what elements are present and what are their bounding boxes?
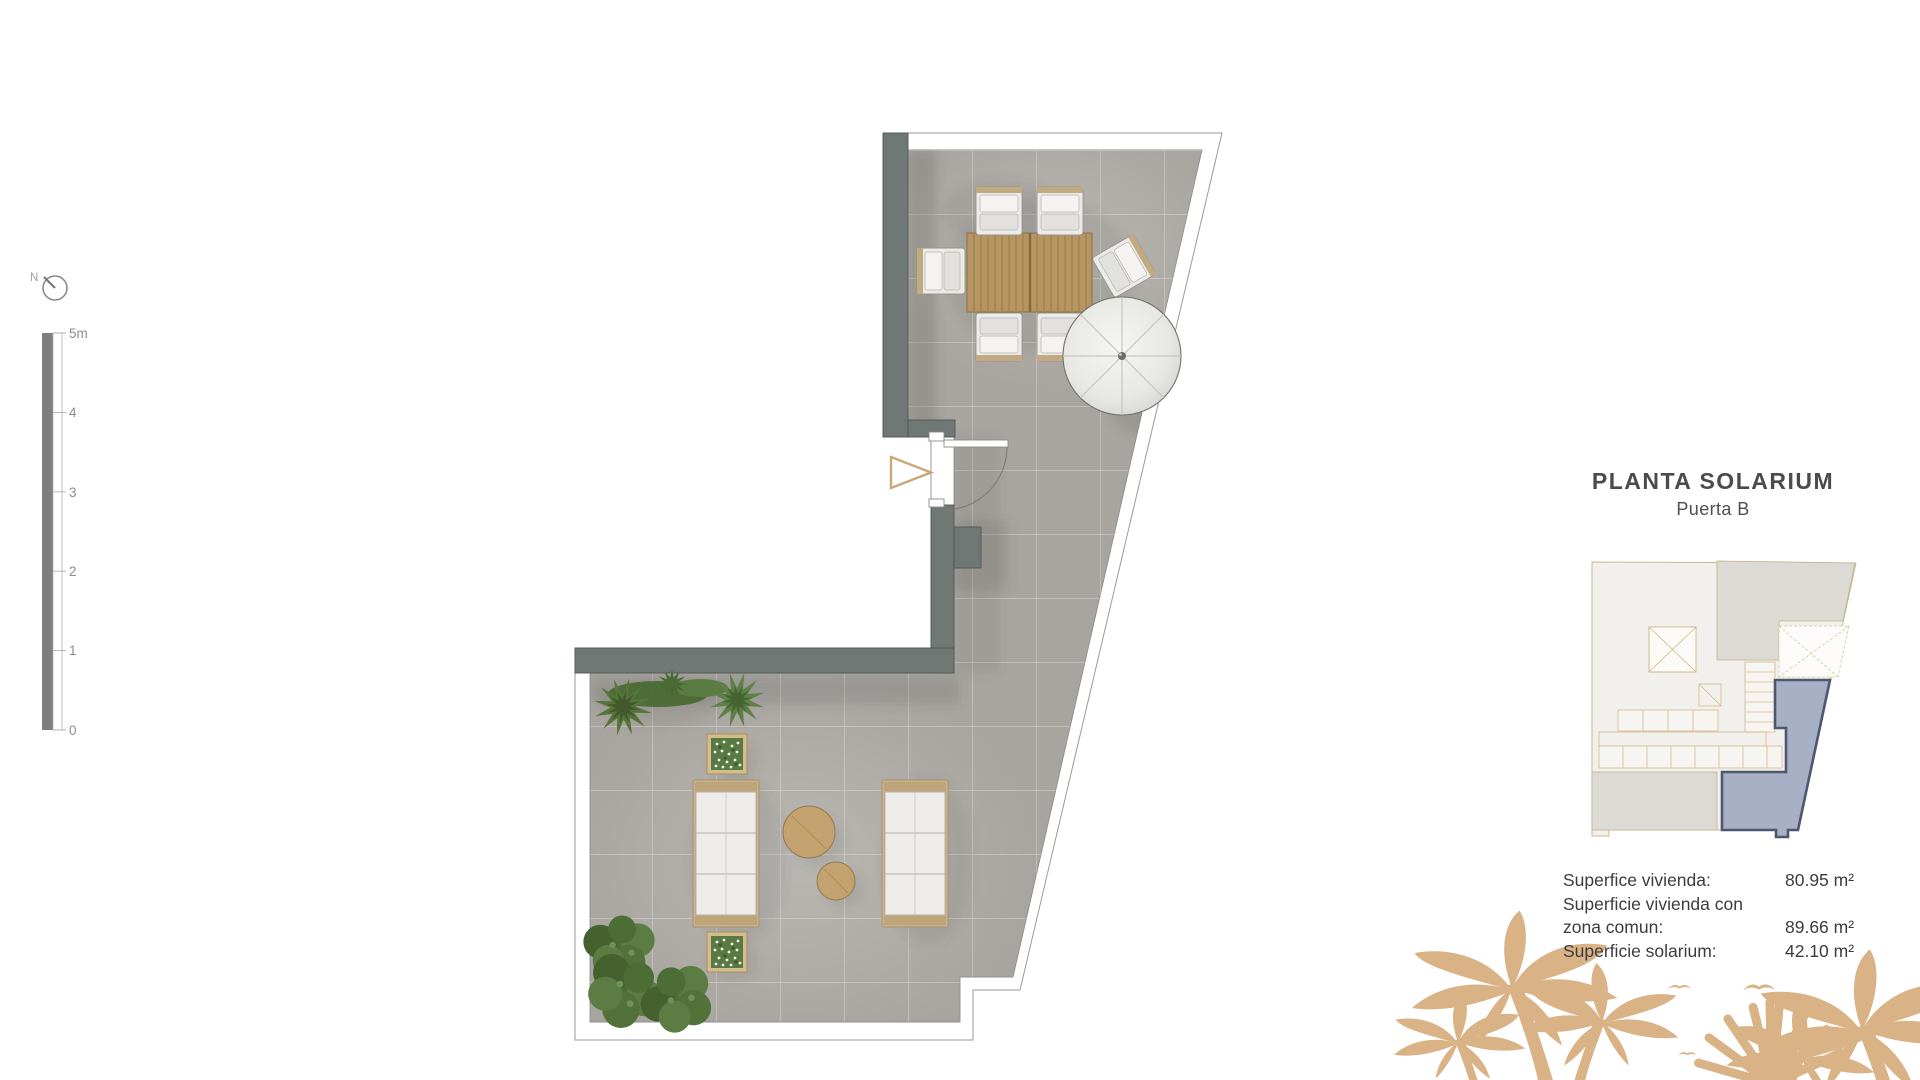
wall-upper-left [883,133,908,437]
area-label: Superficie solarium: [1563,940,1785,964]
area-value: 80.95 m² [1785,869,1883,893]
plan-subtitle: Puerta B [1553,499,1873,520]
daybed-left [693,780,759,927]
scale-label: 2 [69,564,77,579]
area-value: 42.10 m² [1785,940,1883,964]
keyplan-shaft-right [1779,626,1849,677]
coffee-table-large [783,806,835,858]
compass-icon: N [30,272,67,300]
scale-label: 5m [69,326,88,341]
keyplan-common-area-bottom [1592,772,1717,830]
flower-planter-top [707,734,747,774]
area-value [1785,893,1883,917]
seagull-icon [1678,1052,1697,1055]
terrace-plan [560,110,1240,1050]
palm-tree-icon [1394,992,1525,1080]
dining-table [967,233,1092,312]
key-plan [1592,561,1856,837]
dining-chair [976,313,1022,361]
scale-label: 0 [69,723,77,738]
area-label: Superfice vivienda: [1563,869,1785,893]
area-value: 89.66 m² [1785,916,1883,940]
area-row: Superfice vivienda: 80.95 m² [1563,869,1883,893]
parasol [1063,297,1181,415]
scale-label: 4 [69,405,77,420]
coffee-table-small [817,862,855,900]
seagull-icon [1668,985,1691,989]
dining-chair [917,248,965,294]
compass-north-label: N [30,272,38,284]
door-leaf [944,440,1008,447]
scale-bar: 5m 4 3 2 1 0 [42,326,88,738]
seagull-icon [1743,984,1775,990]
palm-cluster-right [1699,949,1920,1080]
area-summary: Superfice vivienda: 80.95 m² Superficie … [1563,869,1883,963]
scale-label: 3 [69,485,77,500]
dining-chair [976,187,1022,235]
area-row: Superficie solarium: 42.10 m² [1563,940,1883,964]
wall-lower-horizontal [575,648,954,673]
door-stop-top [929,432,944,441]
area-row: Superficie vivienda con [1563,893,1883,917]
entrance-arrow-icon [891,457,931,488]
area-label: Superficie vivienda con [1563,893,1785,917]
scale-label: 1 [69,643,77,658]
keyplan-shaft-left [1649,627,1696,672]
door-stop-bottom [929,499,944,507]
flower-planter-bottom [707,932,747,972]
plan-title: PLANTA SOLARIUM [1553,468,1873,495]
daybed-right [882,780,948,927]
title-block: PLANTA SOLARIUM Puerta B [1553,468,1873,520]
area-row: zona comun: 89.66 m² [1563,916,1883,940]
dining-chair [1037,187,1083,235]
plan-sheet: N 5m 4 3 2 1 0 [0,0,1920,1080]
wall-middle-bump [954,527,981,568]
area-label: zona comun: [1563,916,1785,940]
